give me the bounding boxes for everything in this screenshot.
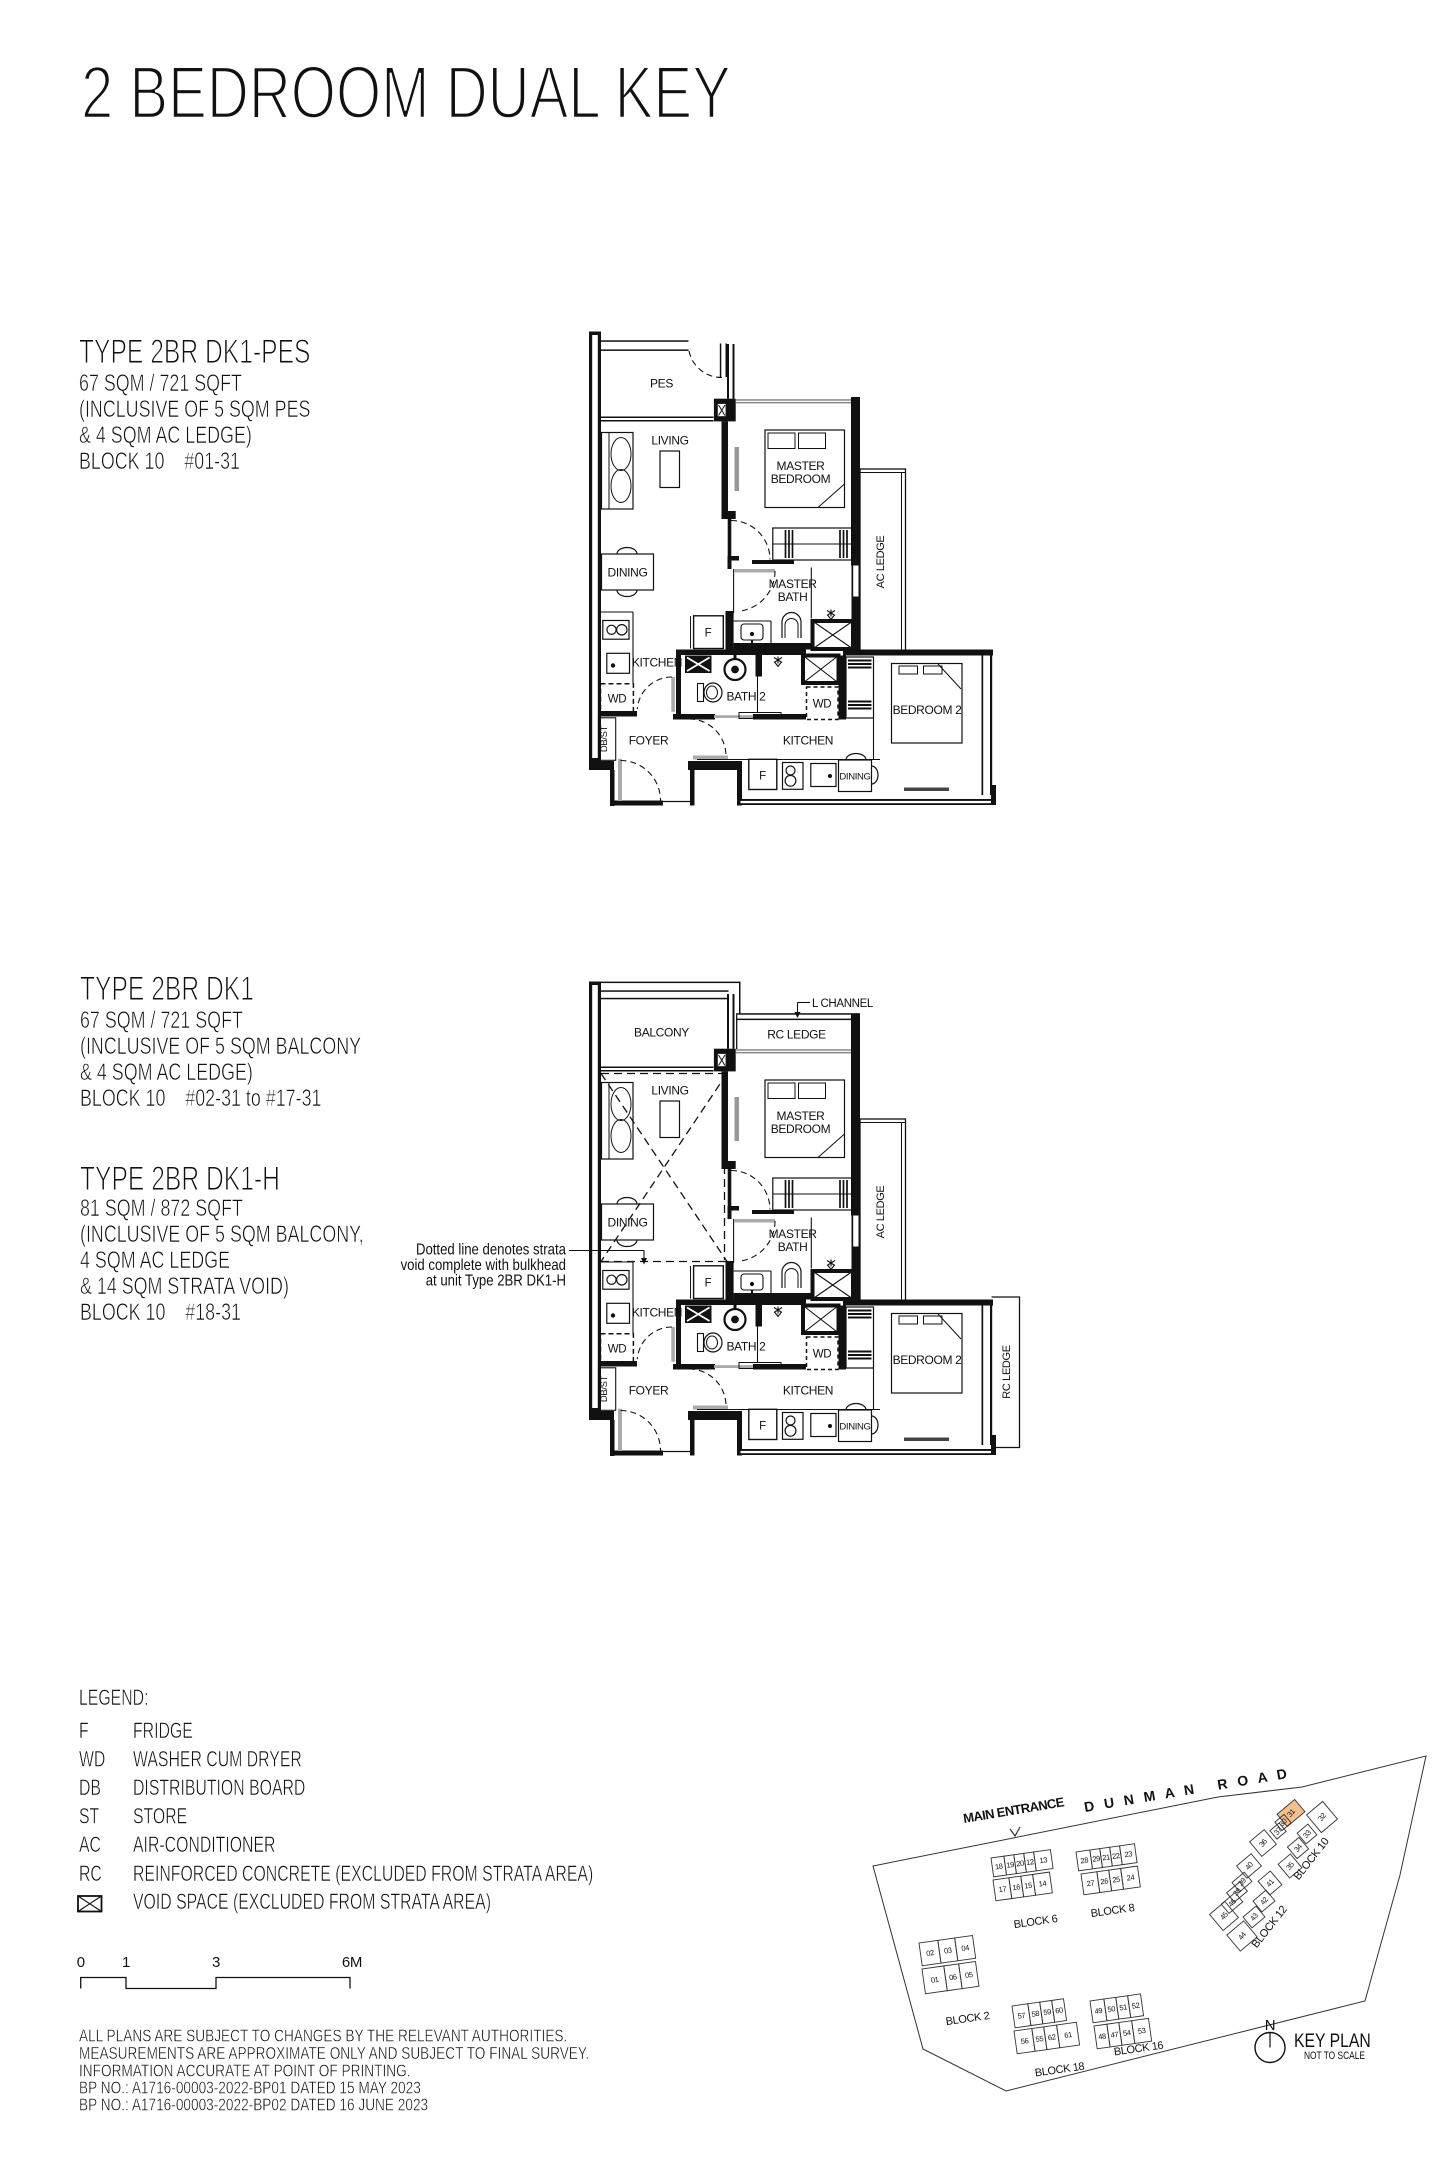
svg-text:AC: AC xyxy=(79,1834,101,1858)
svg-text:55: 55 xyxy=(1035,2034,1044,2044)
svg-text:TYPE 2BR DK1-H: TYPE 2BR DK1-H xyxy=(80,1160,280,1198)
svg-text:DISTRIBUTION BOARD: DISTRIBUTION BOARD xyxy=(133,1777,305,1801)
svg-text:BALCONY: BALCONY xyxy=(634,1026,689,1040)
svg-text:NOT TO SCALE: NOT TO SCALE xyxy=(1304,2050,1365,2063)
svg-text:F: F xyxy=(79,1720,89,1744)
svg-text:18: 18 xyxy=(994,1861,1003,1871)
svg-text:53: 53 xyxy=(1137,2026,1146,2036)
svg-text:04: 04 xyxy=(961,1943,970,1953)
svg-text:PES: PES xyxy=(650,377,673,391)
svg-text:(INCLUSIVE OF 5 SQM BALCONY: (INCLUSIVE OF 5 SQM BALCONY xyxy=(80,1034,361,1060)
svg-text:50: 50 xyxy=(1107,2004,1116,2014)
svg-text:62: 62 xyxy=(1047,2032,1056,2042)
svg-text:56: 56 xyxy=(1020,2036,1029,2046)
svg-text:21: 21 xyxy=(1102,1852,1111,1862)
svg-text:2 BEDROOM DUAL KEY: 2 BEDROOM DUAL KEY xyxy=(81,52,731,134)
svg-text:48: 48 xyxy=(1098,2031,1107,2041)
svg-text:14: 14 xyxy=(1038,1879,1047,1889)
svg-text:28: 28 xyxy=(1080,1855,1089,1865)
svg-text:05: 05 xyxy=(964,1970,973,1980)
svg-text:at unit Type 2BR DK1-H: at unit Type 2BR DK1-H xyxy=(426,1273,566,1290)
svg-text:29: 29 xyxy=(1092,1854,1101,1864)
svg-text:60: 60 xyxy=(1055,2005,1064,2015)
svg-text:23: 23 xyxy=(1124,1849,1133,1859)
svg-text:81 SQM / 872 SQFT: 81 SQM / 872 SQFT xyxy=(80,1196,243,1222)
svg-text:24: 24 xyxy=(1126,1873,1135,1883)
svg-text:47: 47 xyxy=(1110,2030,1119,2040)
svg-text:BLOCK 10 #01-31: BLOCK 10 #01-31 xyxy=(79,449,240,475)
svg-text:0: 0 xyxy=(77,1954,85,1971)
svg-text:20: 20 xyxy=(1016,1858,1025,1868)
svg-text:6M: 6M xyxy=(342,1954,362,1971)
svg-text:MEASUREMENTS ARE APPROXIMATE O: MEASUREMENTS ARE APPROXIMATE ONLY AND SU… xyxy=(79,2045,589,2064)
svg-text:RC: RC xyxy=(79,1863,102,1887)
svg-text:58: 58 xyxy=(1031,2009,1040,2019)
svg-text:WD: WD xyxy=(79,1748,105,1772)
svg-text:L CHANNEL: L CHANNEL xyxy=(812,998,874,1010)
svg-text:BP NO.: A1716-00003-2022-BP02: BP NO.: A1716-00003-2022-BP02 DATED 16 J… xyxy=(79,2096,428,2115)
svg-text:TYPE 2BR DK1: TYPE 2BR DK1 xyxy=(80,970,254,1008)
svg-text:& 4 SQM AC LEDGE): & 4 SQM AC LEDGE) xyxy=(79,423,252,449)
svg-text:ALL PLANS ARE SUBJECT TO CHANG: ALL PLANS ARE SUBJECT TO CHANGES BY THE … xyxy=(79,2027,567,2046)
svg-text:LEGEND:: LEGEND: xyxy=(79,1687,149,1711)
svg-text:22: 22 xyxy=(1112,1851,1121,1861)
svg-text:59: 59 xyxy=(1043,2007,1052,2017)
svg-text:N: N xyxy=(1265,2017,1275,2034)
svg-text:16: 16 xyxy=(1012,1882,1021,1892)
svg-text:49: 49 xyxy=(1094,2006,1103,2016)
svg-text:DB: DB xyxy=(79,1777,101,1801)
svg-text:01: 01 xyxy=(930,1975,939,1985)
svg-text:WASHER CUM DRYER: WASHER CUM DRYER xyxy=(133,1748,302,1772)
svg-text:FRIDGE: FRIDGE xyxy=(133,1720,193,1744)
svg-text:54: 54 xyxy=(1122,2028,1131,2038)
svg-text:STORE: STORE xyxy=(133,1805,187,1829)
svg-text:4 SQM AC LEDGE: 4 SQM AC LEDGE xyxy=(80,1248,230,1274)
svg-text:51: 51 xyxy=(1119,2002,1128,2012)
svg-text:(INCLUSIVE OF 5 SQM BALCONY,: (INCLUSIVE OF 5 SQM BALCONY, xyxy=(80,1222,364,1248)
svg-text:13: 13 xyxy=(1039,1855,1048,1865)
svg-text:3: 3 xyxy=(212,1954,220,1971)
svg-text:17: 17 xyxy=(998,1884,1007,1894)
svg-text:03: 03 xyxy=(943,1946,952,1956)
svg-text:& 4 SQM AC LEDGE): & 4 SQM AC LEDGE) xyxy=(80,1060,253,1086)
svg-text:RC LEDGE: RC LEDGE xyxy=(767,1028,826,1042)
svg-text:61: 61 xyxy=(1064,2030,1073,2040)
svg-text:02: 02 xyxy=(926,1948,935,1958)
svg-text:(INCLUSIVE OF 5 SQM PES: (INCLUSIVE OF 5 SQM PES xyxy=(79,397,310,423)
svg-text:57: 57 xyxy=(1017,2011,1026,2021)
svg-text:1: 1 xyxy=(122,1954,130,1971)
svg-text:19: 19 xyxy=(1006,1860,1015,1870)
svg-text:& 14 SQM STRATA VOID): & 14 SQM STRATA VOID) xyxy=(80,1274,289,1300)
svg-text:67 SQM / 721 SQFT: 67 SQM / 721 SQFT xyxy=(79,371,242,397)
svg-text:REINFORCED CONCRETE (EXCLUDED: REINFORCED CONCRETE (EXCLUDED FROM STRAT… xyxy=(133,1863,593,1887)
svg-text:BLOCK 10 #02-31 to #17-31: BLOCK 10 #02-31 to #17-31 xyxy=(80,1086,321,1112)
svg-text:VOID SPACE (EXCLUDED FROM STRA: VOID SPACE (EXCLUDED FROM STRATA AREA) xyxy=(133,1891,491,1915)
svg-text:27: 27 xyxy=(1086,1878,1095,1888)
svg-text:BLOCK 10 #18-31: BLOCK 10 #18-31 xyxy=(80,1300,241,1326)
svg-text:52: 52 xyxy=(1131,2001,1140,2011)
svg-text:06: 06 xyxy=(949,1972,958,1982)
svg-text:26: 26 xyxy=(1100,1876,1109,1886)
svg-text:67 SQM / 721 SQFT: 67 SQM / 721 SQFT xyxy=(80,1008,243,1034)
svg-text:RC LEDGE: RC LEDGE xyxy=(1001,1345,1013,1398)
svg-text:15: 15 xyxy=(1024,1881,1033,1891)
svg-text:TYPE 2BR DK1-PES: TYPE 2BR DK1-PES xyxy=(79,333,310,371)
svg-text:KEY PLAN: KEY PLAN xyxy=(1294,2030,1371,2052)
svg-text:12: 12 xyxy=(1026,1857,1035,1867)
svg-text:ST: ST xyxy=(79,1805,99,1829)
svg-text:AIR-CONDITIONER: AIR-CONDITIONER xyxy=(133,1834,275,1858)
svg-text:25: 25 xyxy=(1112,1875,1121,1885)
